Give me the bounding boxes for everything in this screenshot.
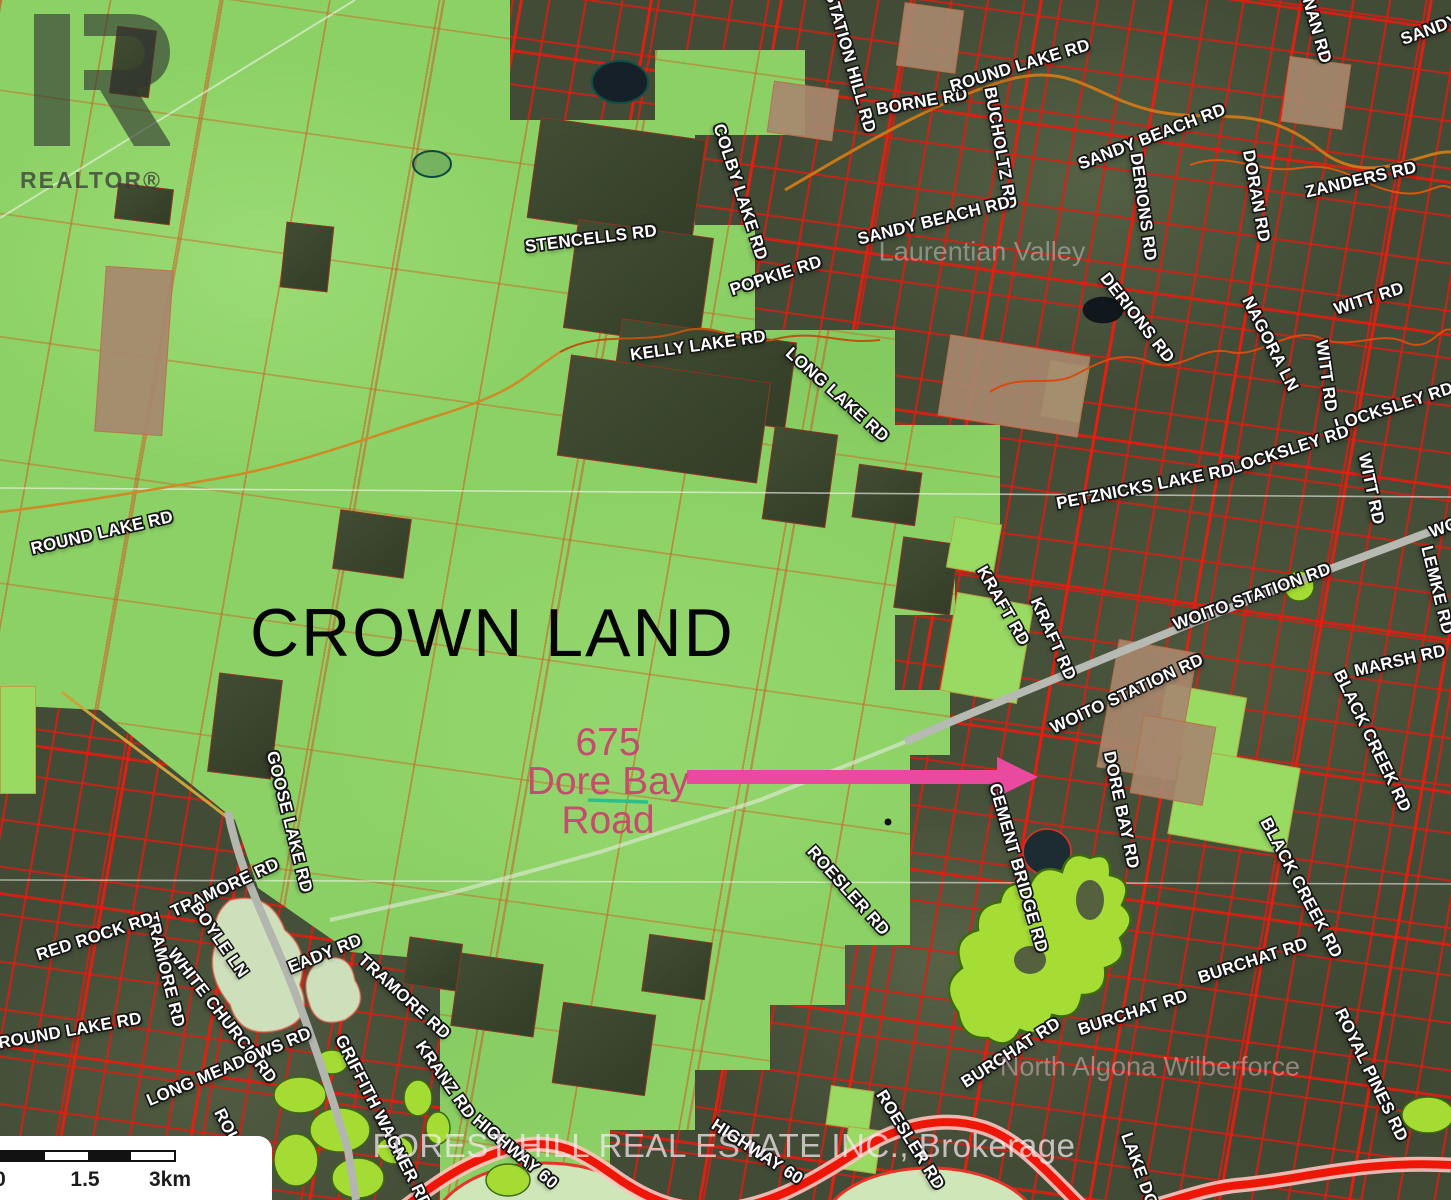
road-label-sandy-beach-rd: SANDY BEACH RD [1075,100,1228,175]
road-label-roesler-rd: ROESLER RD [803,842,894,940]
scale-tick-end: 3km [149,1168,191,1192]
property-address-callout: 675 Dore Bay Road [500,723,716,840]
road-label-woito-station-rd: WOITO STATION RD [1170,559,1333,635]
road-label-enan-rd: ENAN RD [1295,0,1336,66]
road-label-round-lake-rd: ROUND LAKE RD [948,35,1093,97]
road-label-red-rock-rd: RED ROCK RD [34,909,156,966]
scale-tick-mid: 1.5 [70,1168,99,1192]
watermark-laurentian-valley: Laurentian Valley [879,237,1086,268]
watermark-forest-hill-real-estate-inc-br: FOREST HILL REAL ESTATE INC., Brokerage [373,1127,1076,1165]
road-label-cement-bridge-rd: CEMENT BRIDGE RD [984,781,1051,955]
road-label-royal-pines-rd: ROYAL PINES RD [1330,1005,1412,1144]
address-line-3: Road [500,801,716,840]
road-label-witt-rd: WITT RD [1354,452,1389,527]
watermark-north-algona-wilberforce: North Algona Wilberforce [1000,1052,1300,1083]
road-label-round-lake-rd: ROUND LAKE RD [29,507,175,559]
road-label-zanders-rd: ZANDERS RD [1303,157,1418,202]
road-label-black-creek-rd: BLACK CREEK RD [1329,667,1415,816]
road-label-petznicks-lake-rd: PETZNICKS LAKE RD [1055,460,1236,514]
road-label-witt-rd: WITT RD [1311,339,1341,413]
road-label-colby-lake-rd: COLBY LAKE RD [709,121,772,262]
road-label-kelly-lake-rd: KELLY LAKE RD [629,327,767,366]
road-label-locksley-rd: LOCKSLEY RD [1228,421,1352,478]
crown-land-label: CROWN LAND [250,594,735,672]
map-canvas: STATION HILL RDBORNE RDROUND LAKE RDBUCH… [0,0,1451,1200]
road-label-lake-do: LAKE DO [1116,1130,1161,1200]
road-label-stencells-rd: STENCELLS RD [524,221,658,257]
road-label-marsh-rd: MARSH RD [1352,641,1447,681]
road-label-tramore-rd: TRAMORE RD [168,854,283,922]
road-label-round-lake-rd: ROUND LAKE RD [0,1009,143,1054]
road-label-long-lake-rd: LONG LAKE RD [781,343,892,446]
address-line-2: Dore Bay [500,762,716,801]
road-label-lemke-rd: LEMKE RD [1416,544,1451,637]
road-label-nagora-ln: NAGORA LN [1237,293,1302,395]
realtor-watermark: REALTOR® [6,10,176,194]
road-label-burchat-rd: BURCHAT RD [1196,934,1311,988]
road-label-eady-rd: EADY RD [285,930,364,978]
road-label-burchat-rd: BURCHAT RD [1076,986,1191,1040]
realtor-logo-icon [20,10,170,158]
realtor-wordmark: REALTOR® [6,167,176,194]
scale-bar-segments [0,1150,176,1162]
road-label-kranz-rd: KRANZ RD [411,1037,479,1123]
road-label-sandy: SANDY [1398,10,1451,49]
road-label-locksley-rd: LOCKSLEY RD [1332,378,1451,435]
road-label-wo: WO [1427,514,1451,543]
map-scale-bar: 0 1.5 3km [0,1136,272,1200]
road-label-derions-rd: DERIONS RD [1096,269,1179,367]
road-label-dore-bay-rd: DORE BAY RD [1099,750,1143,871]
scale-tick-start: 0 [0,1168,6,1192]
road-label-station-hill-rd: STATION HILL RD [820,0,880,135]
road-label-kraft-rd: KRAFT RD [972,563,1034,650]
road-label-tramore-rd: TRAMORE RD [354,950,454,1043]
road-label-derions-rd: DERIONS RD [1126,152,1161,262]
road-label-doran-rd: DORAN RD [1238,148,1274,243]
address-line-1: 675 [500,723,716,762]
road-label-popkie-rd: POPKIE RD [728,252,825,300]
road-label-bucholtz-rd: BUCHOLTZ RD [979,85,1020,210]
road-label-witt-rd: WITT RD [1332,278,1407,319]
